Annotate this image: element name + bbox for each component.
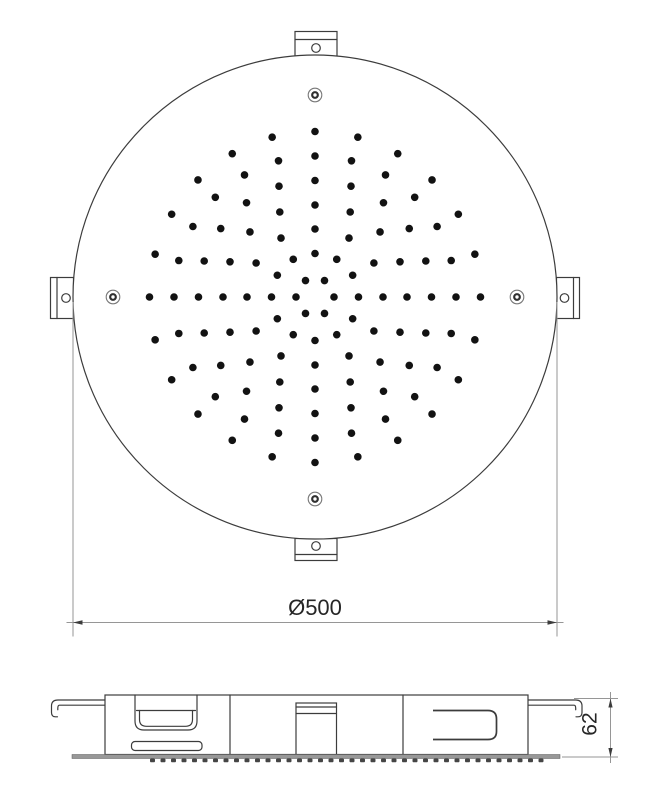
spray-bump — [507, 759, 512, 763]
nozzle-dot — [330, 293, 338, 301]
nozzle-dot — [396, 328, 404, 336]
spray-bump — [192, 759, 197, 763]
nozzle-dot — [333, 331, 341, 339]
spray-bump — [308, 759, 313, 763]
arrowhead-left — [73, 620, 83, 624]
nozzle-dot — [380, 199, 388, 207]
nozzle-dot — [246, 358, 254, 366]
nozzle-dot — [311, 201, 319, 209]
nozzle-dot — [347, 404, 355, 412]
nozzle-dot — [226, 328, 234, 336]
nozzle-dot — [170, 293, 178, 301]
height-arrowhead-top — [608, 699, 612, 708]
nozzle-dot — [252, 259, 260, 267]
right-hook-inner — [528, 705, 576, 710]
nozzle-dot — [349, 315, 357, 323]
nozzle-dot — [346, 378, 354, 386]
nozzle-dot — [243, 387, 251, 395]
nozzle-dot — [433, 223, 441, 231]
nozzle-dot — [376, 358, 384, 366]
nozzle-dot — [219, 293, 227, 301]
height-dimension: 62 — [562, 692, 618, 763]
bracket-top-hole — [312, 44, 321, 53]
spray-plate — [72, 755, 560, 759]
spray-bump — [360, 759, 365, 763]
spray-bump — [486, 759, 491, 763]
nozzle-dot — [268, 453, 276, 461]
nozzle-dot — [411, 393, 419, 401]
nozzle-dot — [455, 210, 463, 218]
nozzle-dot — [175, 330, 183, 338]
nozzle-dot — [321, 310, 329, 318]
nozzle-dot — [274, 271, 282, 279]
nozzle-dot — [212, 194, 220, 202]
nozzle-dot — [311, 361, 319, 369]
nozzle-dot — [194, 410, 202, 418]
spray-bump — [245, 759, 250, 763]
nozzle-dot — [241, 415, 249, 423]
spray-bump — [455, 759, 460, 763]
spray-bump — [392, 759, 397, 763]
nozzle-dot — [311, 128, 319, 136]
nozzle-dot — [370, 259, 378, 267]
nozzle-dot — [354, 133, 362, 141]
nozzle-dot — [348, 157, 356, 165]
nozzle-dot — [268, 133, 276, 141]
nozzle-dot — [422, 329, 430, 337]
nozzle-dot — [346, 208, 354, 216]
spray-bump — [297, 759, 302, 763]
spray-bump — [182, 759, 187, 763]
nozzle-dot — [252, 327, 260, 335]
nozzle-dot — [311, 177, 319, 185]
nozzle-dot — [175, 257, 183, 265]
nozzle-dot — [422, 257, 430, 265]
spray-bump — [203, 759, 208, 763]
nozzle-dot — [433, 364, 441, 372]
spray-bump — [350, 759, 355, 763]
nozzle-dot — [241, 171, 249, 179]
nozzle-dot — [277, 352, 285, 360]
nozzle-dot — [311, 385, 319, 393]
spray-bump — [287, 759, 292, 763]
nozzle-dot — [151, 336, 159, 344]
spray-bump — [476, 759, 481, 763]
nozzle-dot — [355, 293, 363, 301]
nozzle-dot — [455, 376, 463, 384]
spray-bump — [276, 759, 281, 763]
nozzle-dot — [292, 293, 300, 301]
spray-bump — [161, 759, 166, 763]
nozzle-dot — [311, 225, 319, 233]
nozzle-dot — [311, 459, 319, 467]
nozzle-dot — [354, 453, 362, 461]
spray-bump — [266, 759, 271, 763]
nozzle-dot — [311, 250, 319, 258]
nozzle-dot — [396, 258, 404, 266]
nozzle-dot — [189, 364, 197, 372]
nozzle-dot — [168, 376, 176, 384]
nozzle-dot — [289, 256, 297, 264]
mounting-bracket-bottom — [295, 539, 337, 561]
nozzle-dot — [276, 378, 284, 386]
nozzle-dot — [217, 225, 225, 233]
spray-bump — [171, 759, 176, 763]
spray-bump — [224, 759, 229, 763]
side-slot — [132, 742, 203, 751]
technical-drawing-svg: Ø500 62 — [0, 0, 661, 800]
spray-bump — [528, 759, 533, 763]
nozzle-dot — [411, 194, 419, 202]
nozzle-dot — [151, 250, 159, 258]
nozzle-dot — [447, 330, 455, 338]
spray-bump — [444, 759, 449, 763]
nozzle-dot — [217, 362, 225, 370]
nozzle-dot — [394, 437, 402, 445]
nozzle-dot — [348, 429, 356, 437]
nozzle-dot — [274, 315, 282, 323]
nozzle-dot — [477, 293, 485, 301]
nozzle-dot — [243, 293, 251, 301]
nozzle-dot — [195, 293, 203, 301]
nozzle-dot — [146, 293, 154, 301]
nozzle-dot — [333, 256, 341, 264]
nozzle-dot — [200, 329, 208, 337]
nozzle-dot — [311, 337, 319, 345]
nozzle-dot — [382, 171, 390, 179]
nozzle-dot — [471, 250, 479, 258]
spray-bump — [423, 759, 428, 763]
nozzle-dot — [345, 352, 353, 360]
nozzle-dot — [345, 234, 353, 242]
left-hook-inner — [58, 705, 105, 710]
bracket-left-hole — [62, 294, 71, 303]
nozzle-dot — [212, 393, 220, 401]
spray-bump — [213, 759, 218, 763]
top-view — [51, 32, 580, 561]
spray-bump — [539, 759, 544, 763]
spray-bump — [465, 759, 470, 763]
spray-bump — [234, 759, 239, 763]
nozzle-dot — [347, 182, 355, 190]
spray-bump — [434, 759, 439, 763]
nozzle-dot — [321, 277, 329, 285]
bracket-bottom-hole — [312, 542, 321, 551]
nozzle-dot — [289, 331, 297, 339]
face-plate-circle — [73, 55, 557, 539]
nozzle-dot — [275, 404, 283, 412]
spray-bump — [413, 759, 418, 763]
nozzle-dot — [276, 208, 284, 216]
nozzle-dot — [405, 362, 413, 370]
drawing-canvas: Ø500 62 — [0, 0, 661, 800]
nozzle-dot — [428, 176, 436, 184]
nozzle-dot — [228, 437, 236, 445]
nozzle-dot — [311, 410, 319, 418]
spray-bump — [329, 759, 334, 763]
arrowhead-right — [548, 620, 558, 624]
nozzle-dot — [376, 228, 384, 236]
spray-bump — [339, 759, 344, 763]
spray-bump — [318, 759, 323, 763]
spray-bump — [402, 759, 407, 763]
mounting-bracket-top — [295, 32, 337, 58]
nozzle-dot — [277, 234, 285, 242]
nozzle-dot — [428, 410, 436, 418]
spray-bump — [255, 759, 260, 763]
nozzle-dot — [405, 225, 413, 233]
spray-bump — [381, 759, 386, 763]
inlet-block — [296, 703, 337, 755]
nozzle-dot — [168, 210, 176, 218]
spray-bump — [150, 759, 155, 763]
spray-bump — [371, 759, 376, 763]
nozzle-dot — [302, 310, 310, 318]
nozzle-dot — [394, 150, 402, 158]
nozzle-dot — [194, 176, 202, 184]
nozzle-dot — [226, 258, 234, 266]
nozzle-dot — [268, 293, 276, 301]
nozzle-dot — [243, 199, 251, 207]
spray-bump — [518, 759, 523, 763]
nozzle-dot — [428, 293, 436, 301]
nozzle-dot — [349, 271, 357, 279]
diameter-label: Ø500 — [288, 595, 342, 620]
mounting-bracket-left — [51, 278, 74, 319]
nozzle-dot — [275, 182, 283, 190]
nozzle-dot — [370, 327, 378, 335]
nozzle-dot — [275, 429, 283, 437]
nozzle-dot — [302, 277, 310, 285]
nozzle-dot — [311, 434, 319, 442]
mounting-bracket-right — [557, 278, 580, 319]
nozzle-dot — [380, 387, 388, 395]
height-label: 62 — [579, 712, 602, 735]
nozzle-dot — [311, 152, 319, 160]
nozzle-dot — [228, 150, 236, 158]
nozzle-dot — [403, 293, 411, 301]
side-view — [52, 695, 583, 762]
bracket-right-hole — [560, 294, 569, 303]
right-hook-outer — [528, 700, 582, 717]
nozzle-dot — [382, 415, 390, 423]
left-hook-outer — [52, 700, 106, 717]
nozzle-dot — [471, 336, 479, 344]
nozzle-dot — [452, 293, 460, 301]
nozzle-dot — [447, 257, 455, 265]
nozzle-dot — [275, 157, 283, 165]
height-arrowhead-bottom — [608, 748, 612, 757]
nozzle-dot — [246, 228, 254, 236]
nozzle-dot — [200, 257, 208, 265]
spray-bump — [497, 759, 502, 763]
nozzle-dot — [379, 293, 387, 301]
nozzle-dot — [189, 223, 197, 231]
spray-nozzle-bumps — [150, 759, 544, 763]
